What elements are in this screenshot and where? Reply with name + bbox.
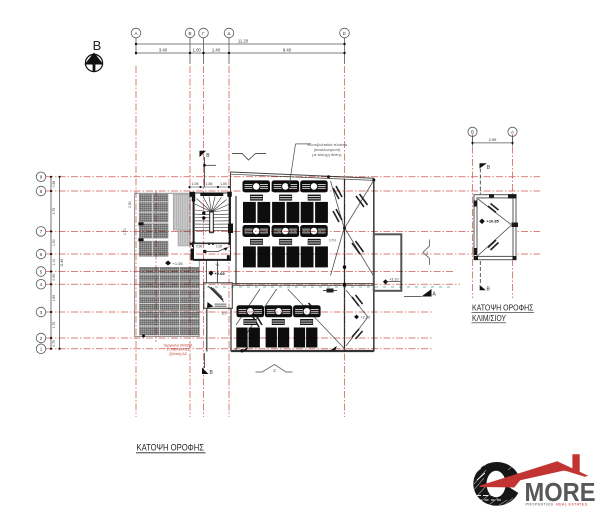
svg-text:A: A	[511, 130, 514, 135]
svg-text:1.00: 1.00	[220, 182, 227, 186]
svg-text:A: A	[134, 31, 137, 36]
svg-text:ΚΑΤΟΨΗ ΟΡΟΦΗΣ: ΚΑΤΟΨΗ ΟΡΟΦΗΣ	[137, 443, 205, 453]
svg-text:1.75: 1.75	[52, 322, 56, 329]
svg-text:ΚΛΙΜ/ΣΙΟΥ: ΚΛΙΜ/ΣΙΟΥ	[472, 314, 507, 323]
svg-text:0.95: 0.95	[52, 274, 56, 281]
svg-text:1.40: 1.40	[212, 48, 221, 53]
svg-text:+1.05: +1.05	[173, 261, 184, 266]
svg-text:B: B	[93, 38, 102, 53]
svg-text:1.00: 1.00	[193, 48, 202, 53]
svg-text:0.90: 0.90	[196, 245, 202, 249]
svg-text:0.95: 0.95	[52, 181, 56, 188]
svg-text:9.40: 9.40	[283, 48, 292, 53]
svg-text:B: B	[471, 130, 474, 135]
svg-text:+3.10: +3.10	[389, 278, 399, 282]
svg-text:2.75: 2.75	[52, 208, 56, 215]
svg-text:+10.85: +10.85	[487, 219, 500, 224]
svg-text:PROPERTIES: PROPERTIES	[526, 503, 554, 507]
svg-text:2.95: 2.95	[489, 137, 498, 142]
svg-text:REAL ESTATES.: REAL ESTATES.	[556, 503, 589, 507]
svg-text:11.20: 11.20	[238, 39, 249, 44]
svg-text:11.45: 11.45	[60, 259, 64, 267]
svg-text:1.05: 1.05	[192, 182, 199, 186]
svg-text:ΕΥ: ΕΥ	[222, 312, 228, 316]
svg-text:Δ: Δ	[227, 31, 230, 36]
svg-text:ΥΔ: ΥΔ	[215, 263, 220, 267]
svg-text:1.85: 1.85	[52, 295, 56, 302]
svg-text:1.00: 1.00	[216, 245, 222, 249]
svg-text:B: B	[188, 31, 191, 36]
svg-text:E: E	[343, 31, 346, 36]
svg-text:1.10: 1.10	[52, 259, 56, 266]
svg-text:3.40: 3.40	[159, 48, 168, 53]
svg-text:(ξύλινη) Δ2: (ξύλινη) Δ2	[169, 352, 187, 356]
svg-text:0.75: 0.75	[52, 340, 56, 347]
svg-text:2.50: 2.50	[128, 201, 132, 208]
svg-text:0.5%: 0.5%	[329, 239, 336, 243]
svg-text:1.85: 1.85	[206, 182, 213, 186]
svg-text:ΚΑΤΟΨΗ ΟΡΟΦΗΣ: ΚΑΤΟΨΗ ΟΡΟΦΗΣ	[472, 304, 534, 313]
svg-text:+2.90: +2.90	[361, 316, 371, 320]
svg-text:με κάτοχη θέσης: με κάτοχη θέσης	[312, 152, 341, 157]
svg-text:1.50: 1.50	[52, 239, 56, 246]
